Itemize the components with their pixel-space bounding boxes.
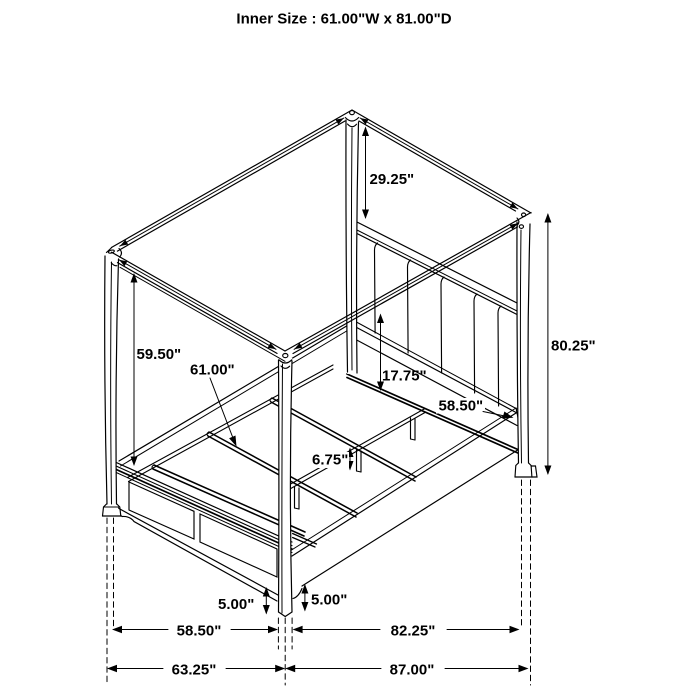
svg-text:6.75": 6.75" bbox=[312, 452, 348, 469]
svg-text:63.25": 63.25" bbox=[172, 662, 217, 679]
svg-text:58.50": 58.50" bbox=[177, 623, 222, 640]
svg-text:Inner Size : 61.00"W x 81.00"D: Inner Size : 61.00"W x 81.00"D bbox=[236, 11, 451, 28]
svg-text:5.00": 5.00" bbox=[311, 592, 347, 609]
svg-text:61.00": 61.00" bbox=[190, 362, 235, 379]
svg-text:5.00": 5.00" bbox=[218, 596, 254, 613]
svg-text:59.50": 59.50" bbox=[137, 346, 182, 363]
svg-text:82.25": 82.25" bbox=[391, 623, 436, 640]
svg-text:80.25": 80.25" bbox=[551, 338, 596, 355]
svg-text:17.75": 17.75" bbox=[382, 368, 427, 385]
svg-text:29.25": 29.25" bbox=[370, 171, 415, 188]
svg-text:58.50": 58.50" bbox=[439, 398, 484, 415]
svg-text:87.00": 87.00" bbox=[390, 662, 435, 679]
